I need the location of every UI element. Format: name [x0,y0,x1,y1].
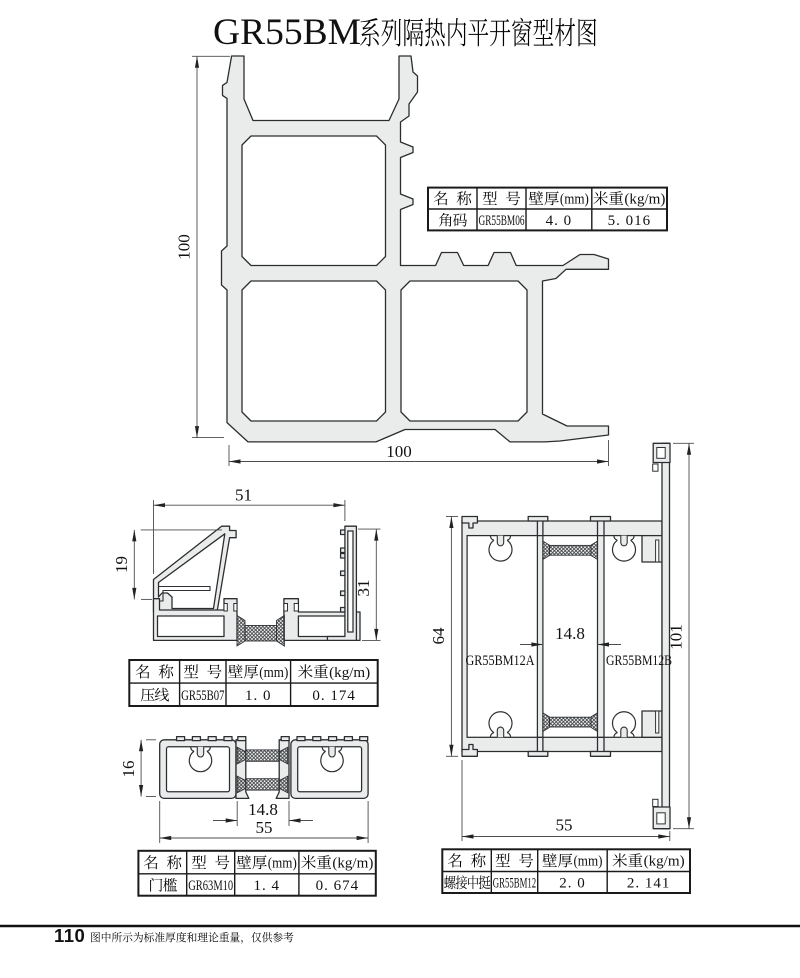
svg-text:2. 141: 2. 141 [627,876,671,892]
svg-text:GR55BM12: GR55BM12 [493,876,536,892]
svg-text:19: 19 [112,556,131,573]
svg-text:5. 016: 5. 016 [608,213,652,229]
svg-text:55: 55 [256,818,273,837]
svg-text:110: 110 [54,925,85,946]
svg-text:55: 55 [556,816,573,835]
svg-text:51: 51 [235,486,252,505]
svg-text:14.8: 14.8 [248,800,278,819]
svg-text:64: 64 [429,627,448,645]
svg-text:(kg/m): (kg/m) [644,854,685,870]
svg-text:100: 100 [175,234,194,260]
svg-text:(mm): (mm) [560,192,589,208]
svg-text:4. 0: 4. 0 [546,213,573,229]
svg-text:(kg/m): (kg/m) [329,665,370,681]
svg-text:0. 674: 0. 674 [316,878,360,894]
svg-text:31: 31 [354,580,373,597]
svg-text:GR55B07: GR55B07 [181,688,224,704]
svg-text:2. 0: 2. 0 [559,876,586,892]
svg-text:16: 16 [119,761,138,778]
svg-text:(mm): (mm) [268,856,297,872]
svg-text:14.8: 14.8 [555,624,585,643]
svg-text:GR55BM12A: GR55BM12A [466,653,535,669]
svg-text:(mm): (mm) [573,854,602,870]
svg-text:GR55BM: GR55BM [213,12,361,53]
svg-text:GR63M10: GR63M10 [188,878,233,894]
svg-text:0. 174: 0. 174 [312,688,356,704]
svg-text:GR55BM12B: GR55BM12B [606,653,672,669]
svg-text:100: 100 [386,442,412,461]
svg-text:1. 0: 1. 0 [245,688,272,704]
svg-text:(kg/m): (kg/m) [624,192,665,208]
svg-text:GR55BM06: GR55BM06 [479,213,525,229]
svg-text:101: 101 [667,624,686,650]
svg-text:1. 4: 1. 4 [254,878,281,894]
svg-text:(mm): (mm) [259,665,288,681]
svg-text:(kg/m): (kg/m) [332,856,373,872]
